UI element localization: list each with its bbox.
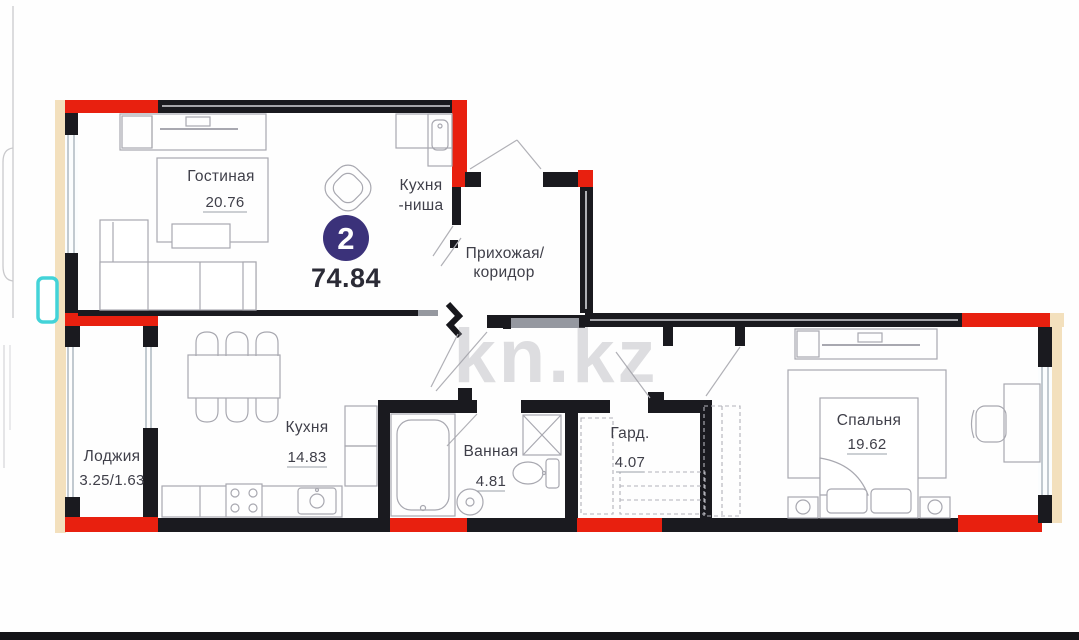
living-area: 20.76	[205, 194, 244, 211]
bathroom-area: 4.81	[476, 473, 506, 490]
wardrobe-label: Гард.	[610, 425, 649, 442]
watermark: kn.kz	[453, 314, 658, 399]
bathroom-label: Ванная	[464, 443, 519, 460]
bedroom-label: Спальня	[837, 412, 901, 429]
living-window	[65, 133, 78, 253]
total-area: 74.84	[311, 263, 381, 293]
hallway-label: Прихожая/	[466, 245, 545, 262]
bottom-bar	[0, 632, 1079, 640]
living-label: Гостиная	[187, 168, 254, 185]
wardrobe-area: 4.07	[615, 454, 645, 471]
hallway-label2: коридор	[473, 264, 534, 281]
cyan-position-marker	[38, 278, 57, 322]
stove	[226, 484, 262, 517]
loggia-area: 3.25/1.63	[79, 472, 144, 489]
living-door-leaf	[418, 310, 438, 316]
kitchen-niche-label: Кухня	[400, 177, 443, 194]
bedroom-area: 19.62	[847, 436, 886, 453]
coffee-table	[172, 224, 230, 248]
loggia-label: Лоджия	[84, 448, 141, 465]
floor-plan-screenshot: Гостиная 20.76 Кухня -ниша Прихожая/ кор…	[0, 0, 1079, 640]
kitchen-label: Кухня	[286, 419, 329, 436]
kitchen-niche-label2: -ниша	[399, 197, 444, 214]
badge-rooms-count: 2	[337, 221, 355, 256]
kitchen-area: 14.83	[287, 449, 326, 466]
floor-plan-svg: Гостиная 20.76 Кухня -ниша Прихожая/ кор…	[0, 0, 1079, 640]
